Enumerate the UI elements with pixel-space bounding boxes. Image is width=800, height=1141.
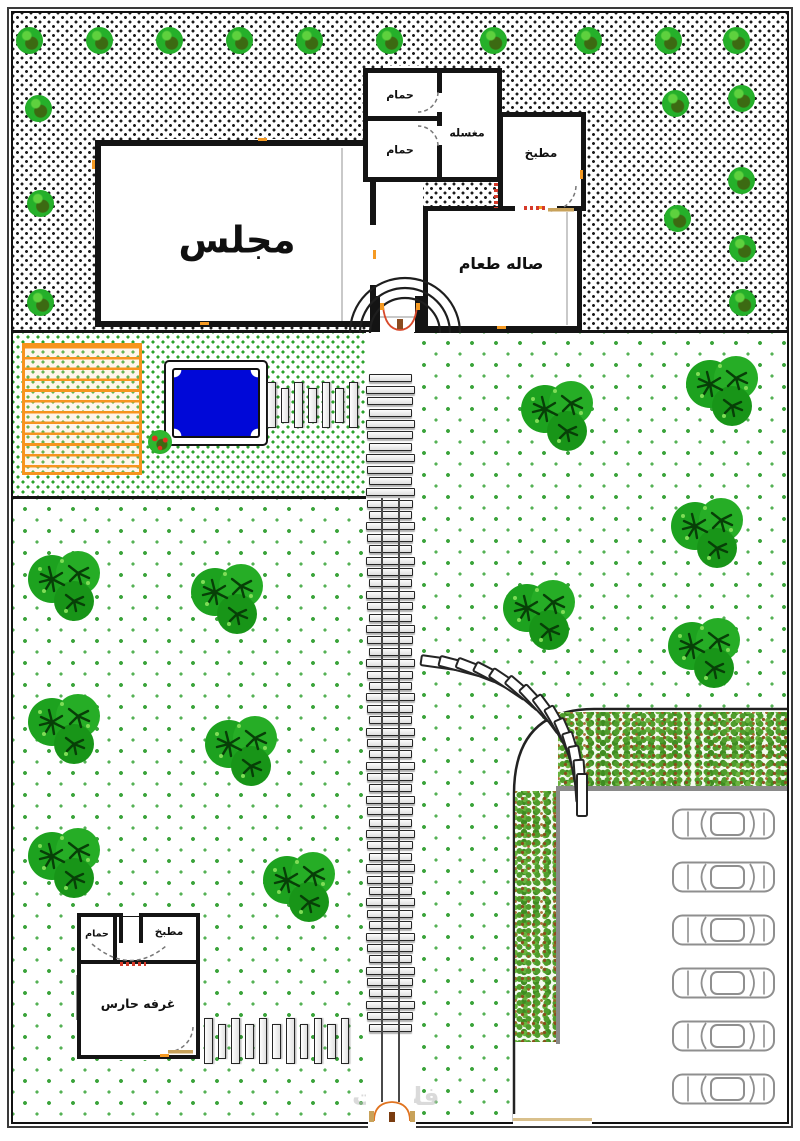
majlis-label: مجلس xyxy=(179,222,296,259)
path-slab xyxy=(218,1024,227,1059)
bush-icon xyxy=(729,235,756,262)
car-icon xyxy=(670,1071,778,1107)
bush-icon xyxy=(655,27,682,54)
service-divider-wall xyxy=(368,116,442,121)
bush-icon xyxy=(27,190,54,217)
dim-tick xyxy=(92,160,95,169)
path-slab xyxy=(366,488,415,496)
guard-entry-stub xyxy=(119,917,123,943)
path-slab xyxy=(314,1018,323,1064)
pergola xyxy=(22,343,142,475)
car-icon xyxy=(670,912,778,948)
dim-tick xyxy=(200,322,209,325)
guard-bathroom-label: حمام xyxy=(85,929,109,939)
tree-icon xyxy=(515,375,601,455)
path-slab xyxy=(367,397,413,405)
kitchen-label: مطبخ xyxy=(525,147,558,159)
parking-cars xyxy=(670,806,778,1107)
path-slab xyxy=(286,1018,295,1064)
path-slab xyxy=(259,1018,268,1064)
guard-room-label: غرفه حارس xyxy=(101,998,176,1011)
car-icon xyxy=(670,859,778,895)
path-slab xyxy=(231,1018,240,1064)
car-icon xyxy=(670,806,778,842)
dim-tick xyxy=(160,1054,169,1057)
path-slab xyxy=(327,1024,336,1059)
bush-icon xyxy=(664,205,691,232)
path-slab xyxy=(300,1024,309,1059)
path-slab xyxy=(341,1018,350,1064)
dining-label: صاله طعام xyxy=(459,256,544,272)
path-slab xyxy=(369,374,412,382)
bathroom2-label: حمام xyxy=(386,145,414,156)
hedge-top xyxy=(558,712,787,787)
bush-icon xyxy=(25,95,52,122)
path-slab xyxy=(281,388,290,423)
tree-icon xyxy=(257,846,343,926)
hedge-left xyxy=(515,791,557,1042)
pool xyxy=(172,368,260,438)
lintel-line xyxy=(380,316,415,318)
car-icon xyxy=(670,1018,778,1054)
path-slab xyxy=(369,443,412,451)
site-plan: فلامنت xyxy=(0,0,800,1141)
path-slab xyxy=(369,409,412,417)
tree-icon xyxy=(22,688,108,768)
bush-icon xyxy=(723,27,750,54)
flower-bush-icon xyxy=(148,430,172,454)
bush-icon xyxy=(296,27,323,54)
tree-icon xyxy=(185,558,271,638)
bush-icon xyxy=(729,289,756,316)
dim-tick xyxy=(497,326,506,329)
path-slab xyxy=(366,386,415,394)
path-slab xyxy=(349,382,358,428)
guard-divider-wall xyxy=(113,917,117,962)
path-slab xyxy=(322,382,331,428)
lawn-boundary-line xyxy=(13,496,368,499)
car-gate-threshold xyxy=(513,1118,592,1121)
path-slab xyxy=(245,1024,254,1059)
bush-icon xyxy=(16,27,43,54)
bush-icon xyxy=(662,90,689,117)
tree-icon xyxy=(497,574,583,654)
path-slab xyxy=(294,382,303,428)
bathroom1-label: حمام xyxy=(386,90,414,101)
bush-icon xyxy=(376,27,403,54)
path-slab xyxy=(335,388,344,423)
car-icon xyxy=(670,965,778,1001)
tree-icon xyxy=(199,710,285,790)
tree-icon xyxy=(680,350,766,430)
service-block xyxy=(363,68,502,182)
tree-icon xyxy=(665,492,751,572)
threshold-marks xyxy=(120,962,146,966)
bush-icon xyxy=(27,289,54,316)
threshold-marks xyxy=(524,206,546,210)
road-edge-top xyxy=(556,786,787,791)
path-slab xyxy=(308,388,317,423)
bush-icon xyxy=(728,85,755,112)
bush-icon xyxy=(480,27,507,54)
walkway-rails xyxy=(381,498,400,1102)
path-slab xyxy=(204,1018,213,1064)
doorway xyxy=(123,910,139,916)
tree-icon xyxy=(22,822,108,902)
kitchen-room xyxy=(498,112,586,211)
tree-icon xyxy=(22,545,108,625)
guard-stepping-stones xyxy=(204,1016,349,1066)
path-slab xyxy=(366,454,415,462)
pool-stepping-stones xyxy=(267,381,358,429)
laundry-label: مغسله xyxy=(449,128,484,139)
path-slab xyxy=(366,420,415,428)
dim-tick xyxy=(580,170,583,179)
bush-icon xyxy=(156,27,183,54)
dim-tick xyxy=(373,250,376,259)
door-jamb xyxy=(415,296,424,332)
pedestrian-gate-opening xyxy=(368,1103,416,1129)
door-jamb xyxy=(371,296,380,332)
dim-tick xyxy=(258,138,267,141)
bush-icon xyxy=(226,27,253,54)
path-slab xyxy=(367,466,413,474)
column-line xyxy=(566,212,568,325)
path-slab xyxy=(367,431,413,439)
doorway xyxy=(437,93,442,112)
guard-kitchen-label: مطبخ xyxy=(155,927,184,938)
guard-entry-stub xyxy=(139,917,143,943)
road-edge-left xyxy=(556,786,560,1044)
path-slab xyxy=(267,382,276,428)
bush-icon xyxy=(728,167,755,194)
column-line xyxy=(341,148,343,321)
threshold-marks xyxy=(494,183,498,208)
path-slab xyxy=(272,1024,281,1059)
bush-icon xyxy=(575,27,602,54)
service-divider-wall xyxy=(437,73,442,177)
path-slab xyxy=(369,477,412,485)
tree-icon xyxy=(662,612,748,692)
doorway xyxy=(437,126,442,145)
bush-icon xyxy=(86,27,113,54)
